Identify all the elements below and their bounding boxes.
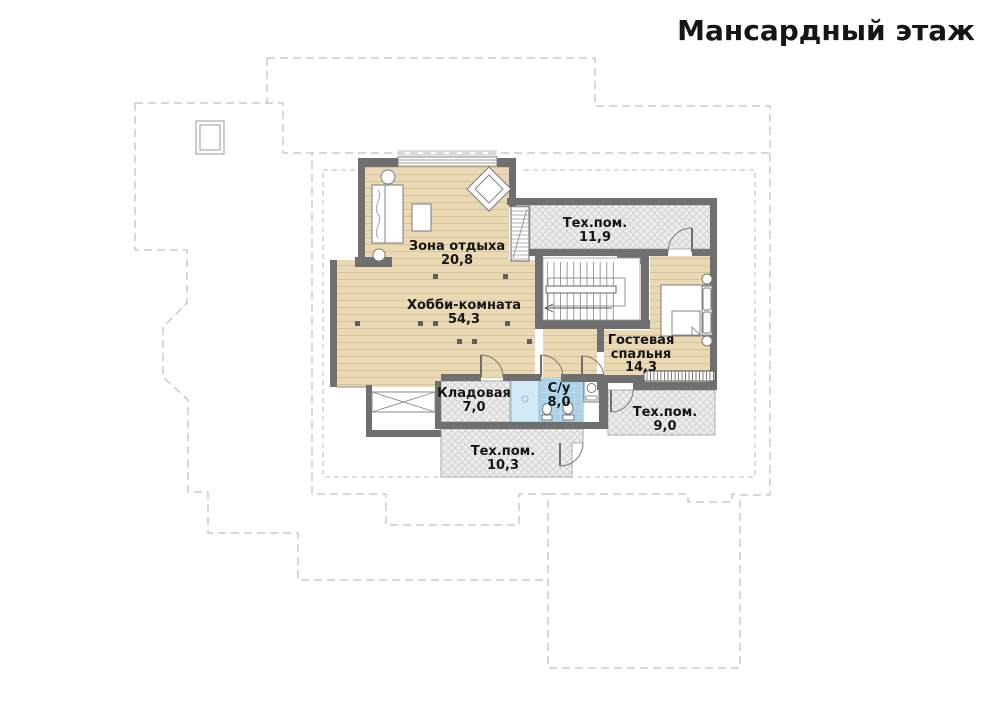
table-icon (412, 204, 431, 231)
room-area-tech11: 11,9 (579, 230, 611, 245)
room-area-storage: 7,0 (462, 400, 485, 415)
room-label-guest-1: Гостевая (608, 333, 675, 348)
void-cross-icon (372, 392, 435, 412)
shower-icon (511, 379, 539, 422)
page-title: Мансардный этаж (677, 14, 975, 47)
room-label-tech9: Тех.пом. (633, 405, 698, 420)
bed-icon (372, 185, 403, 243)
room-area-guest: 14,3 (625, 360, 657, 375)
room-area-tech10: 10,3 (487, 458, 519, 473)
nightstand-icon (702, 336, 712, 346)
stool-icon (373, 249, 385, 261)
chimney-icon (196, 121, 224, 154)
room-area-hobby: 54,3 (448, 312, 480, 327)
room-label-tech10: Тех.пом. (471, 444, 536, 459)
room-area-tech9: 9,0 (653, 419, 676, 434)
floor-plan-page: Мансардный этаж Зона отдыха 20,8 Хобби-к… (0, 0, 1000, 707)
closet-ladder-icon (511, 206, 529, 261)
floor-plan-svg: Мансардный этаж Зона отдыха 20,8 Хобби-к… (0, 0, 1000, 707)
room-label-storage: Кладовая (437, 386, 511, 401)
room-label-lounge: Зона отдыха (409, 239, 505, 254)
room-label-bathroom: С/у (548, 381, 571, 396)
room-label-hobby: Хобби-комната (407, 298, 521, 313)
room-area-bathroom: 8,0 (547, 395, 570, 410)
stairs-icon (543, 258, 640, 320)
room-label-tech11: Тех.пом. (563, 216, 628, 231)
pillow-icon (381, 170, 395, 184)
room-area-lounge: 20,8 (441, 253, 473, 268)
bed-icon (661, 285, 712, 336)
nightstand-icon (702, 274, 712, 284)
washer-icon (584, 379, 599, 402)
